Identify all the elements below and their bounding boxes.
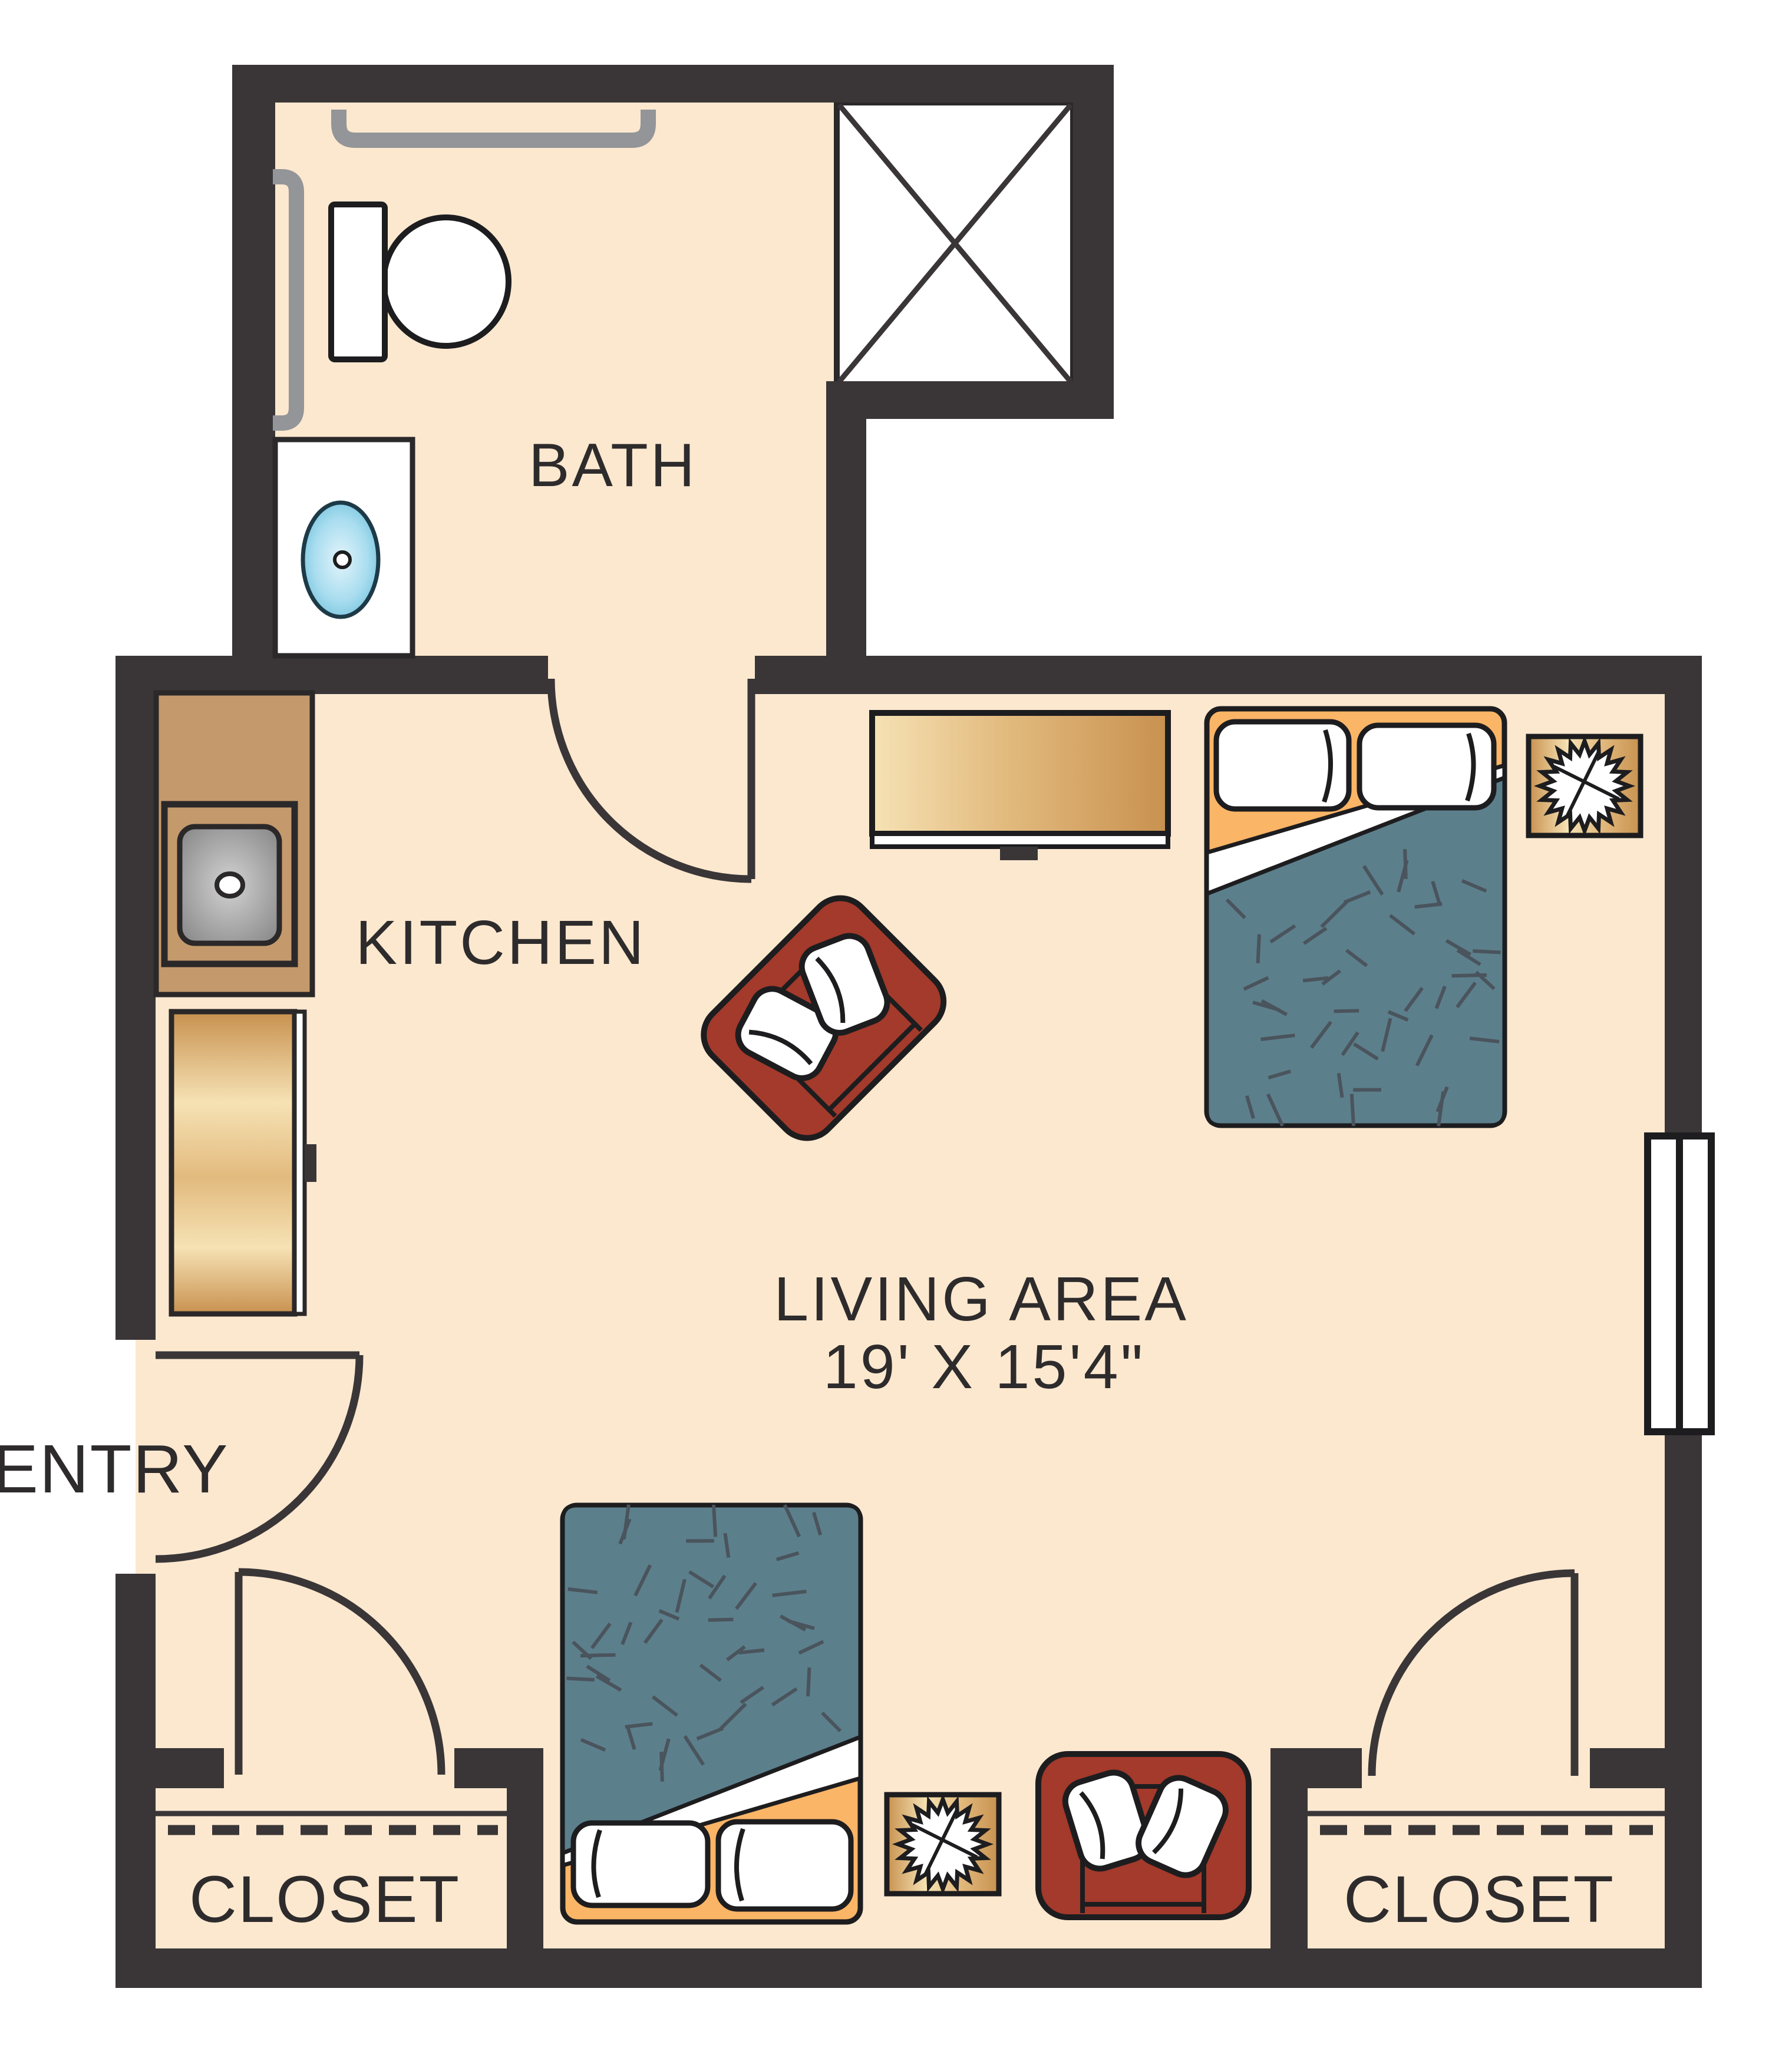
tv-icon <box>872 713 1168 860</box>
wall-segment <box>1590 1748 1665 1788</box>
nightstand-sunburst-icon <box>887 1795 999 1894</box>
wall-segment <box>1270 1748 1308 1948</box>
living-area-label: LIVING AREA <box>774 1264 1189 1334</box>
armchair-icon <box>1038 1754 1249 1917</box>
window-icon <box>1648 1136 1711 1432</box>
wall-segment <box>232 65 275 694</box>
bath-vanity <box>275 440 412 656</box>
bed-icon <box>1207 709 1504 1126</box>
closet-right-label: CLOSET <box>1344 1862 1615 1936</box>
nightstand-sunburst-icon <box>1529 736 1641 835</box>
bed-icon <box>563 1505 860 1922</box>
wall-segment <box>115 656 156 1340</box>
floor-plan-canvas: BATH KITCHEN LIVING AREA 19' X 15'4" ENT… <box>0 0 1792 2061</box>
refrigerator-icon <box>171 1012 316 1314</box>
wall-segment <box>115 1948 1702 1988</box>
bath-label: BATH <box>529 431 697 500</box>
wall-segment <box>755 656 1702 694</box>
shower-icon <box>837 103 1073 384</box>
kitchen-label: KITCHEN <box>355 908 646 977</box>
kitchen-sink-icon <box>164 804 295 964</box>
bath-sink-icon <box>303 503 378 617</box>
toilet-icon <box>331 204 509 359</box>
closet-left-label: CLOSET <box>189 1862 460 1936</box>
wall-segment <box>156 1748 224 1788</box>
wall-segment <box>232 65 1114 103</box>
wall-segment <box>826 381 1114 419</box>
wall-segment <box>507 1748 543 1948</box>
kitchen-counter <box>156 693 312 995</box>
wall-segment <box>115 1574 156 1988</box>
wall-segment <box>1073 65 1114 419</box>
living-area-dimensions: 19' X 15'4" <box>823 1332 1145 1402</box>
floor-plan: BATH KITCHEN LIVING AREA 19' X 15'4" ENT… <box>0 0 1792 2061</box>
wall-segment <box>115 656 548 694</box>
entry-label: ENTRY <box>0 1431 229 1507</box>
wall-segment <box>826 381 866 694</box>
